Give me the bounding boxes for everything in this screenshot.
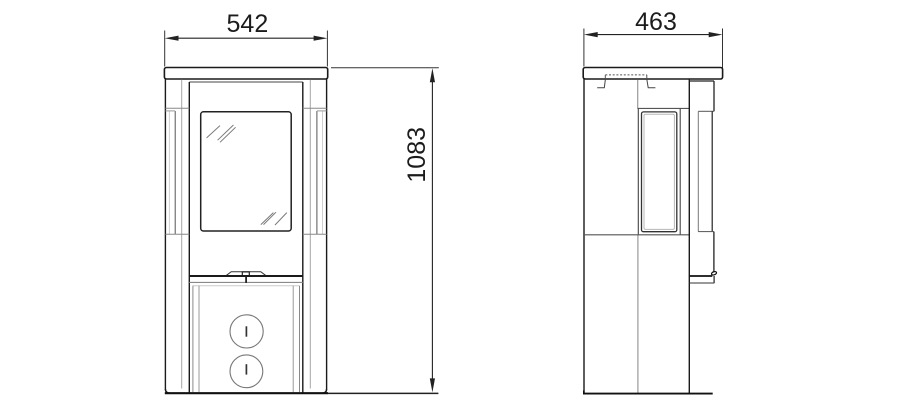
svg-text:542: 542 [227, 10, 269, 38]
svg-text:1083: 1083 [403, 127, 431, 183]
svg-text:463: 463 [635, 8, 677, 36]
